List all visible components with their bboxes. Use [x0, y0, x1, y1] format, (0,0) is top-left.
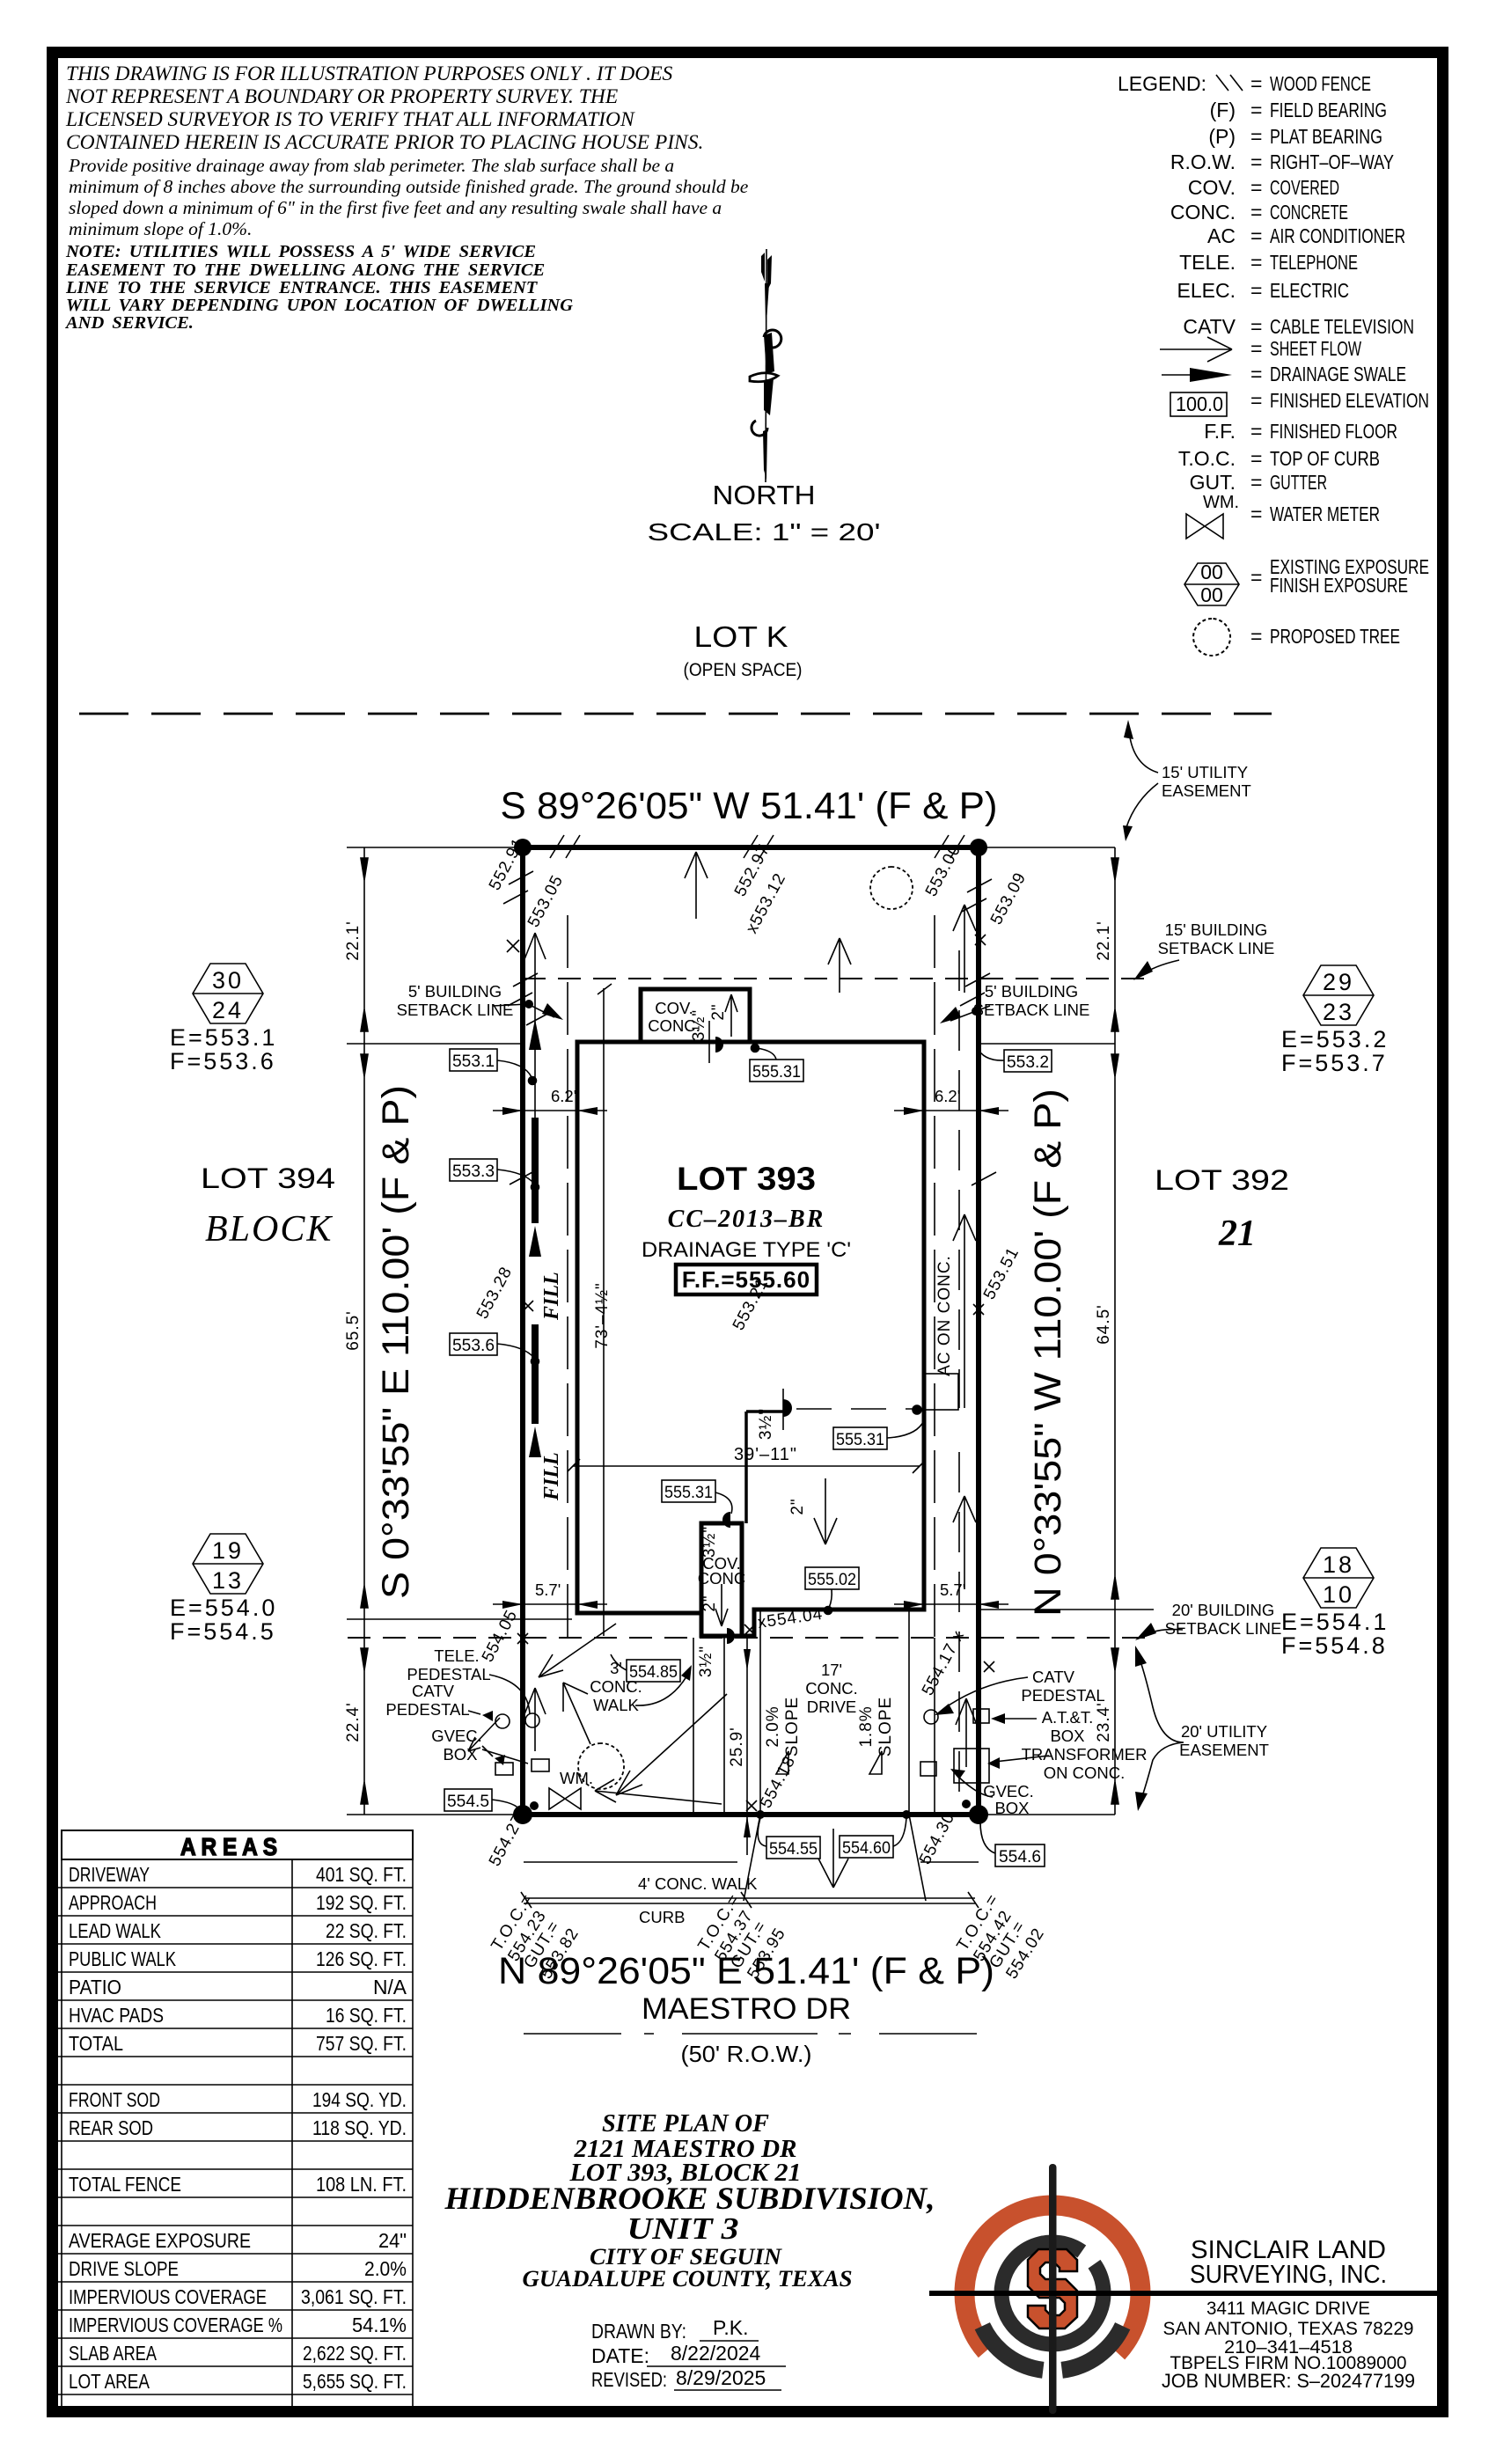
svg-text:LEAD WALK: LEAD WALK — [69, 1919, 161, 1942]
svg-text:THIS DRAWING IS FOR ILLUSTRATI: THIS DRAWING IS FOR ILLUSTRATION PURPOSE… — [66, 62, 673, 85]
svg-text:22.4': 22.4' — [344, 1702, 363, 1742]
svg-text:EASEMENT: EASEMENT — [1179, 1741, 1269, 1759]
svg-text:00: 00 — [1200, 583, 1223, 606]
svg-text:IMPERVIOUS COVERAGE %: IMPERVIOUS COVERAGE % — [69, 2314, 282, 2336]
svg-text:CONC.: CONC. — [590, 1677, 642, 1696]
svg-text:39'–11": 39'–11" — [734, 1445, 797, 1464]
svg-text:6.2': 6.2' — [551, 1087, 576, 1105]
svg-text:R.O.W.: R.O.W. — [1170, 150, 1236, 173]
svg-text:19: 19 — [212, 1537, 244, 1564]
svg-text:PEDESTAL: PEDESTAL — [407, 1665, 490, 1683]
svg-text:=: = — [1250, 471, 1262, 494]
svg-text:LINE TO THE SERVICE ENTRAN: LINE TO THE SERVICE ENTRANCE. THIS EASEM… — [65, 278, 539, 297]
svg-text:20' UTILITY: 20' UTILITY — [1181, 1722, 1267, 1741]
svg-text:2,622 SQ. FT.: 2,622 SQ. FT. — [303, 2342, 407, 2365]
svg-text:WATER METER: WATER METER — [1270, 502, 1380, 525]
svg-text:=: = — [1250, 420, 1262, 443]
svg-text:3': 3' — [610, 1659, 622, 1677]
svg-text:N 0°33'55" W 110.00' (F & P): N 0°33'55" W 110.00' (F & P) — [1027, 1089, 1069, 1617]
svg-text:sloped down a minimum of 6" in: sloped down a minimum of 6" in the first… — [69, 197, 722, 218]
svg-text:LICENSED SURVEYOR IS TO VERIFY: LICENSED SURVEYOR IS TO VERIFY THAT ALL … — [65, 108, 635, 131]
svg-text:3½": 3½" — [757, 1408, 775, 1440]
svg-text:TELE.: TELE. — [434, 1646, 479, 1665]
svg-text:BLOCK: BLOCK — [205, 1209, 333, 1250]
svg-text:DRIVE SLOPE: DRIVE SLOPE — [69, 2257, 179, 2280]
svg-text:2": 2" — [788, 1498, 807, 1514]
svg-text:553.6: 553.6 — [452, 1336, 495, 1355]
svg-text:LOT 393: LOT 393 — [677, 1161, 816, 1197]
svg-text:REVISED:: REVISED: — [591, 2368, 667, 2391]
svg-text:TELEPHONE: TELEPHONE — [1270, 251, 1358, 274]
svg-text:S 0°33'55" E 110.00' (F & P): S 0°33'55" E 110.00' (F & P) — [375, 1085, 417, 1599]
svg-text:126 SQ. FT.: 126 SQ. FT. — [316, 1947, 407, 1970]
svg-text:=: = — [1250, 125, 1262, 148]
svg-text:5,655 SQ. FT.: 5,655 SQ. FT. — [303, 2370, 407, 2393]
svg-text:PEDESTAL: PEDESTAL — [1021, 1686, 1104, 1705]
svg-text:8/29/2025: 8/29/2025 — [676, 2366, 766, 2389]
svg-text:PROPOSED TREE: PROPOSED TREE — [1270, 625, 1400, 648]
svg-text:54.1%: 54.1% — [352, 2314, 407, 2336]
svg-text:23.4': 23.4' — [1095, 1702, 1113, 1742]
svg-text:TOP OF CURB: TOP OF CURB — [1270, 447, 1380, 470]
svg-text:=: = — [1250, 315, 1262, 338]
svg-text:=: = — [1250, 566, 1262, 589]
svg-text:CURB: CURB — [639, 1908, 685, 1926]
svg-text:65.5': 65.5' — [344, 1310, 363, 1351]
svg-text:LOT AREA: LOT AREA — [69, 2370, 150, 2393]
svg-text:ELECTRIC: ELECTRIC — [1270, 279, 1349, 302]
svg-text:554.55: 554.55 — [769, 1839, 818, 1859]
svg-text:A.T.&T.: A.T.&T. — [1042, 1708, 1094, 1727]
svg-text:BOX: BOX — [994, 1799, 1029, 1817]
svg-text:F=553.7: F=553.7 — [1281, 1050, 1388, 1076]
svg-text:APPROACH: APPROACH — [69, 1891, 157, 1914]
svg-text:15' BUILDING: 15' BUILDING — [1165, 920, 1268, 939]
svg-text:29: 29 — [1323, 969, 1354, 995]
svg-text:16 SQ. FT.: 16 SQ. FT. — [326, 2004, 407, 2027]
svg-text:EASEMENT: EASEMENT — [1162, 781, 1251, 800]
svg-text:COVERED: COVERED — [1270, 176, 1339, 199]
svg-text:GVEC.: GVEC. — [431, 1727, 482, 1745]
svg-text:194 SQ. YD.: 194 SQ. YD. — [312, 2088, 407, 2111]
svg-text:AVERAGE EXPOSURE: AVERAGE EXPOSURE — [69, 2229, 251, 2252]
svg-text:CC–2013–BR: CC–2013–BR — [668, 1206, 825, 1233]
svg-text:TRANSFORMER: TRANSFORMER — [1022, 1745, 1148, 1764]
svg-text:HIDDENBROOKE SUBDIVISION,: HIDDENBROOKE SUBDIVISION, — [444, 2181, 935, 2216]
svg-text:E=554.0: E=554.0 — [170, 1595, 277, 1621]
svg-text:PLAT BEARING: PLAT BEARING — [1270, 125, 1382, 148]
svg-text:CABLE TELEVISION: CABLE TELEVISION — [1270, 315, 1414, 338]
svg-text:CONCRETE: CONCRETE — [1270, 201, 1348, 224]
svg-text:FRONT SOD: FRONT SOD — [69, 2088, 160, 2111]
svg-text:LOT K: LOT K — [694, 620, 788, 653]
svg-text:22 SQ. FT.: 22 SQ. FT. — [326, 1919, 407, 1942]
svg-text:WM.: WM. — [560, 1769, 593, 1787]
svg-text:DRAINAGE SWALE: DRAINAGE SWALE — [1270, 363, 1406, 385]
svg-text:F.F.: F.F. — [1204, 420, 1236, 443]
svg-text:COV.: COV. — [1188, 176, 1236, 199]
svg-text:REAR SOD: REAR SOD — [69, 2116, 153, 2139]
svg-text:CONC.: CONC. — [805, 1679, 858, 1698]
svg-text:NOTE: UTILITIES WILL POSSES: NOTE: UTILITIES WILL POSSESS A 5' WIDE S… — [65, 242, 536, 261]
svg-text:FIELD BEARING: FIELD BEARING — [1270, 99, 1387, 121]
svg-text:WOOD FENCE: WOOD FENCE — [1270, 72, 1371, 95]
svg-text:FILL: FILL — [540, 1452, 563, 1501]
svg-text:FINISHED FLOOR: FINISHED FLOOR — [1270, 420, 1397, 443]
svg-text:NOT REPRESENT A BOUNDARY OR PR: NOT REPRESENT A BOUNDARY OR PROPERTY SUR… — [65, 85, 618, 108]
svg-text:(F): (F) — [1210, 99, 1236, 121]
svg-text:=: = — [1250, 389, 1262, 412]
svg-text:DRAINAGE TYPE 'C': DRAINAGE TYPE 'C' — [642, 1238, 851, 1262]
svg-text:2.0%: 2.0% — [364, 2257, 407, 2280]
svg-text:DRIVE: DRIVE — [807, 1698, 857, 1716]
svg-text:GUADALUPE COUNTY, TEXAS: GUADALUPE COUNTY, TEXAS — [523, 2266, 853, 2292]
svg-text:(OPEN SPACE): (OPEN SPACE) — [684, 660, 803, 680]
svg-text:PATIO: PATIO — [69, 1976, 121, 1998]
svg-text:LOT 392: LOT 392 — [1155, 1164, 1289, 1196]
svg-text:=: = — [1250, 625, 1262, 648]
svg-text:2.0%: 2.0% — [764, 1705, 782, 1747]
svg-text:30: 30 — [212, 967, 244, 994]
svg-text:F=553.6: F=553.6 — [170, 1048, 276, 1074]
svg-text:LEGEND:: LEGEND: — [1118, 72, 1206, 95]
svg-text:3½": 3½" — [700, 1526, 719, 1558]
svg-text:RIGHT–OF–WAY: RIGHT–OF–WAY — [1270, 150, 1394, 173]
svg-text:73'–4½": 73'–4½" — [593, 1282, 612, 1349]
svg-text:553.1: 553.1 — [452, 1052, 495, 1071]
svg-text:SETBACK LINE: SETBACK LINE — [397, 1001, 514, 1019]
svg-text:P.K.: P.K. — [713, 2316, 749, 2339]
svg-text:minimum slope of 1.0%.: minimum slope of 1.0%. — [69, 218, 252, 239]
svg-text:DRIVEWAY: DRIVEWAY — [69, 1863, 150, 1886]
svg-text:GUT.: GUT. — [1190, 471, 1236, 494]
svg-text:TOTAL FENCE: TOTAL FENCE — [69, 2173, 181, 2196]
svg-text:00: 00 — [1200, 561, 1223, 583]
svg-text:SLAB AREA: SLAB AREA — [69, 2342, 157, 2365]
svg-text:BOX: BOX — [1050, 1727, 1084, 1745]
svg-text:PEDESTAL: PEDESTAL — [385, 1700, 469, 1719]
svg-text:=: = — [1250, 176, 1262, 199]
svg-text:64.5': 64.5' — [1095, 1304, 1113, 1345]
svg-text:5' BUILDING: 5' BUILDING — [408, 982, 502, 1001]
svg-text:(50' R.O.W.): (50' R.O.W.) — [681, 2041, 812, 2067]
svg-text:FINISH EXPOSURE: FINISH EXPOSURE — [1270, 574, 1408, 597]
svg-text:JOB NUMBER: S–202477199: JOB NUMBER: S–202477199 — [1162, 2370, 1415, 2392]
svg-text:554.60: 554.60 — [842, 1838, 891, 1858]
svg-text:DRAWN BY:: DRAWN BY: — [591, 2320, 686, 2343]
svg-text:Provide positive drainage away: Provide positive drainage away from slab… — [68, 155, 674, 176]
svg-text:AND SERVICE.: AND SERVICE. — [64, 313, 194, 333]
svg-text:SURVEYING, INC.: SURVEYING, INC. — [1190, 2261, 1387, 2289]
svg-text:FILL: FILL — [540, 1272, 563, 1321]
svg-text:=: = — [1250, 224, 1262, 247]
svg-text:minimum of 8 inches above the: minimum of 8 inches above the surroundin… — [69, 176, 749, 197]
svg-text:555.31: 555.31 — [752, 1062, 801, 1082]
svg-text:5.7': 5.7' — [535, 1580, 561, 1599]
svg-text:100.0: 100.0 — [1176, 392, 1223, 415]
svg-text:A R E A S: A R E A S — [180, 1833, 277, 1860]
svg-text:E=553.2: E=553.2 — [1281, 1026, 1389, 1052]
svg-text:LOT 394: LOT 394 — [201, 1162, 335, 1194]
svg-text:CONC.: CONC. — [1170, 201, 1236, 224]
svg-text:24: 24 — [212, 997, 244, 1023]
svg-text:AIR CONDITIONER: AIR CONDITIONER — [1270, 224, 1405, 247]
svg-text:SLOPE: SLOPE — [876, 1697, 895, 1756]
svg-text:553.2: 553.2 — [1007, 1052, 1049, 1072]
svg-text:AC ON CONC.: AC ON CONC. — [935, 1255, 954, 1376]
svg-text:S 89°26'05" W 51.41' (F & P): S 89°26'05" W 51.41' (F & P) — [501, 785, 998, 827]
svg-text:E=553.1: E=553.1 — [170, 1024, 277, 1051]
svg-text:554.5: 554.5 — [447, 1792, 489, 1811]
svg-text:IMPERVIOUS COVERAGE: IMPERVIOUS COVERAGE — [69, 2285, 267, 2308]
svg-text:8/22/2024: 8/22/2024 — [671, 2342, 761, 2365]
svg-text:DATE:: DATE: — [591, 2344, 649, 2367]
svg-text:PUBLIC WALK: PUBLIC WALK — [69, 1947, 176, 1970]
svg-text:SETBACK LINE: SETBACK LINE — [1165, 1619, 1282, 1638]
svg-text:SLOPE: SLOPE — [783, 1697, 802, 1756]
svg-text:25.9': 25.9' — [728, 1727, 746, 1767]
svg-text:TELE.: TELE. — [1179, 251, 1236, 274]
svg-text:ON CONC.: ON CONC. — [1044, 1764, 1126, 1782]
svg-text:SETBACK LINE: SETBACK LINE — [1158, 939, 1275, 957]
svg-text:CATV: CATV — [1183, 315, 1236, 338]
svg-text:3,061 SQ. FT.: 3,061 SQ. FT. — [301, 2285, 407, 2308]
svg-text:E=554.1: E=554.1 — [1281, 1609, 1389, 1635]
svg-text:192 SQ. FT.: 192 SQ. FT. — [316, 1891, 407, 1914]
svg-text:N/A: N/A — [373, 1976, 407, 1998]
svg-text:757 SQ. FT.: 757 SQ. FT. — [316, 2032, 407, 2055]
svg-text:UNIT 3: UNIT 3 — [627, 2211, 739, 2246]
svg-text:=: = — [1250, 337, 1262, 360]
svg-text:17': 17' — [821, 1661, 842, 1679]
svg-text:3411 MAGIC DRIVE: 3411 MAGIC DRIVE — [1206, 2298, 1370, 2319]
svg-text:=: = — [1250, 72, 1262, 95]
svg-text:WILL VARY DEPENDING UPON L: WILL VARY DEPENDING UPON LOCATION OF DWE… — [66, 296, 573, 315]
svg-text:SITE PLAN OF: SITE PLAN OF — [602, 2109, 769, 2138]
svg-text:10: 10 — [1323, 1581, 1354, 1608]
svg-text:555.02: 555.02 — [808, 1570, 856, 1589]
svg-text:(P): (P) — [1208, 125, 1236, 148]
svg-text:N 89°26'05" E 51.41' (F & P): N 89°26'05" E 51.41' (F & P) — [498, 1950, 994, 1992]
svg-text:2": 2" — [709, 1003, 728, 1020]
svg-text:GVEC.: GVEC. — [983, 1782, 1034, 1800]
svg-text:553.3: 553.3 — [452, 1162, 495, 1181]
svg-text:5.7': 5.7' — [940, 1580, 965, 1599]
svg-text:5' BUILDING: 5' BUILDING — [985, 982, 1078, 1001]
svg-text:GUTTER: GUTTER — [1270, 471, 1327, 494]
svg-text:118 SQ. YD.: 118 SQ. YD. — [312, 2116, 407, 2139]
svg-text:ELEC.: ELEC. — [1177, 279, 1236, 302]
svg-text:=: = — [1250, 447, 1262, 470]
svg-text:108 LN. FT.: 108 LN. FT. — [316, 2173, 407, 2196]
svg-text:3½": 3½" — [690, 1009, 708, 1041]
svg-text:=: = — [1250, 150, 1262, 173]
svg-text:23: 23 — [1323, 999, 1354, 1025]
svg-text:SETBACK LINE: SETBACK LINE — [973, 1001, 1090, 1019]
svg-text:=: = — [1250, 99, 1262, 121]
svg-text:=: = — [1250, 279, 1262, 302]
svg-text:=: = — [1250, 201, 1262, 224]
svg-text:3½": 3½" — [697, 1646, 715, 1677]
svg-text:CONTAINED HEREIN IS ACCURATE P: CONTAINED HEREIN IS ACCURATE PRIOR TO PL… — [66, 131, 703, 154]
svg-text:4' CONC. WALK: 4' CONC. WALK — [638, 1874, 758, 1893]
svg-text:SCALE: 1" = 20': SCALE: 1" = 20' — [648, 518, 881, 546]
svg-text:TOTAL: TOTAL — [69, 2032, 123, 2055]
svg-text:555.31: 555.31 — [836, 1430, 884, 1449]
svg-text:24": 24" — [378, 2229, 407, 2252]
svg-text:13: 13 — [212, 1567, 244, 1594]
svg-text:22.1': 22.1' — [344, 920, 363, 961]
svg-text:FINISHED ELEVATION: FINISHED ELEVATION — [1270, 389, 1429, 412]
svg-text:=: = — [1250, 502, 1262, 525]
svg-text:=: = — [1250, 363, 1262, 385]
svg-text:WM.: WM. — [1203, 493, 1239, 512]
svg-text:18: 18 — [1323, 1551, 1354, 1578]
svg-text:20' BUILDING: 20' BUILDING — [1172, 1601, 1275, 1619]
svg-text:22.1': 22.1' — [1095, 920, 1113, 961]
svg-text:15' UTILITY: 15' UTILITY — [1162, 763, 1248, 781]
svg-text:CATV: CATV — [1032, 1668, 1075, 1686]
svg-text:EASEMENT TO THE DWELLING A: EASEMENT TO THE DWELLING ALONG THE SERVI… — [65, 260, 545, 280]
svg-text:BOX: BOX — [443, 1745, 477, 1764]
svg-text:554.6: 554.6 — [999, 1847, 1041, 1866]
svg-text:HVAC PADS: HVAC PADS — [69, 2004, 164, 2027]
svg-text:SHEET FLOW: SHEET FLOW — [1270, 337, 1361, 360]
svg-text:F.F.=555.60: F.F.=555.60 — [682, 1266, 810, 1293]
svg-text:T.O.C.: T.O.C. — [1178, 447, 1236, 470]
svg-text:MAESTRO DR: MAESTRO DR — [642, 1992, 851, 2026]
svg-text:AC: AC — [1207, 224, 1236, 247]
svg-text:=: = — [1250, 251, 1262, 274]
svg-text:401 SQ. FT.: 401 SQ. FT. — [316, 1863, 407, 1886]
svg-text:CATV: CATV — [412, 1682, 455, 1700]
svg-text:F=554.5: F=554.5 — [170, 1618, 276, 1645]
svg-text:21: 21 — [1218, 1214, 1256, 1254]
svg-text:WALK: WALK — [593, 1696, 639, 1714]
svg-text:NORTH: NORTH — [713, 480, 816, 510]
svg-text:1.8%: 1.8% — [857, 1705, 876, 1747]
svg-text:COV.: COV. — [655, 999, 693, 1017]
svg-text:6.2': 6.2' — [935, 1087, 960, 1105]
svg-text:F=554.8: F=554.8 — [1281, 1632, 1388, 1659]
svg-text:555.31: 555.31 — [664, 1483, 713, 1502]
